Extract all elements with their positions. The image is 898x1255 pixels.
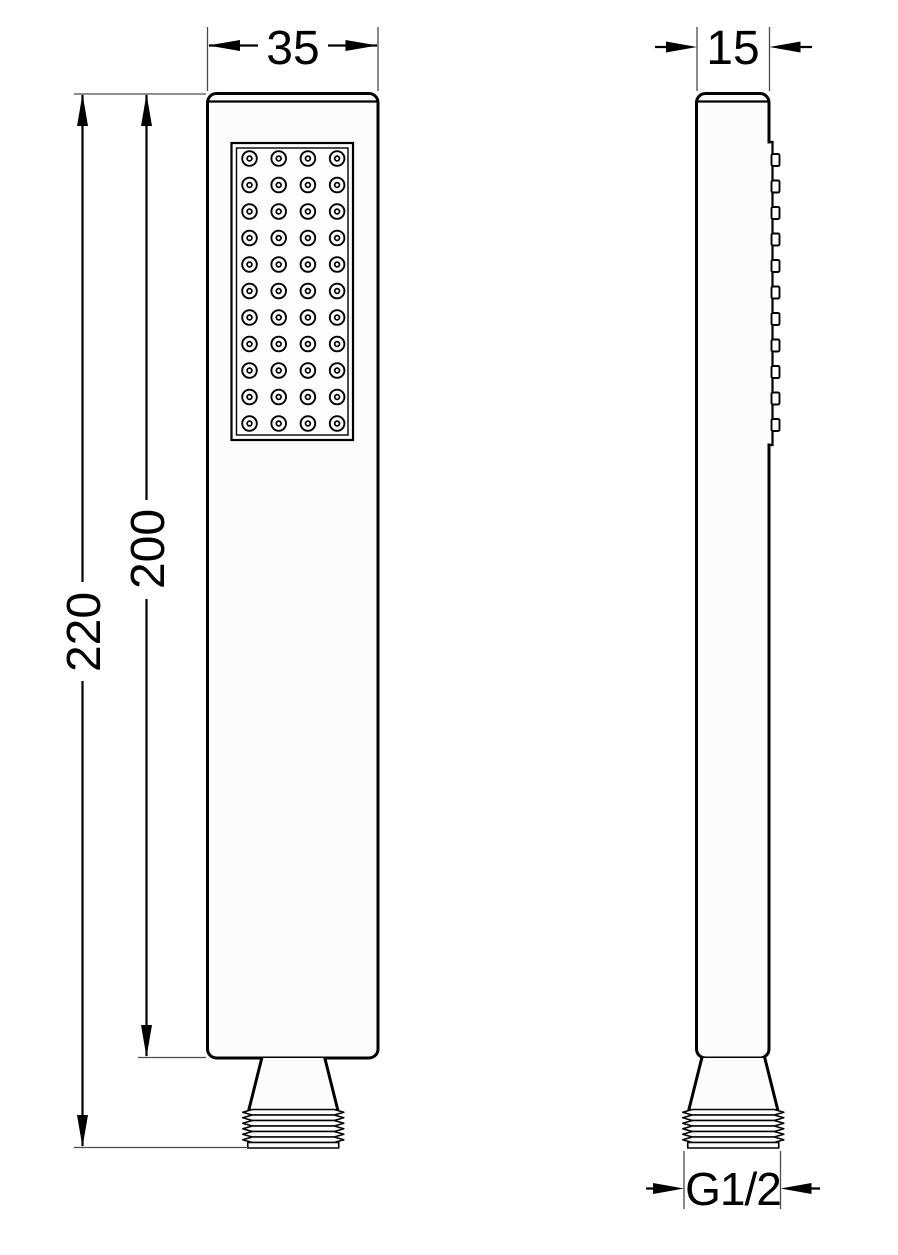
side-nozzle-bump (772, 287, 780, 299)
nozzle-outer-ring (242, 204, 257, 219)
thread-ridge (683, 1115, 784, 1121)
nozzle-outer-ring (301, 416, 316, 431)
nozzle-outer-ring (301, 257, 316, 272)
arrow-left-icon (770, 42, 801, 53)
thread-ridge (243, 1115, 344, 1121)
nozzle-outer-ring (271, 151, 286, 166)
arrow-left-icon (208, 40, 240, 51)
technical-drawing-canvas: 35 220 200 15 G1/2 (0, 0, 898, 1255)
nozzle-outer-ring (330, 390, 345, 405)
nozzle-outer-ring (330, 257, 345, 272)
side-nozzle-bump (772, 340, 780, 352)
front-thread (243, 1110, 344, 1149)
nozzle-outer-ring (330, 204, 345, 219)
nozzle-outer-ring (271, 390, 286, 405)
thread-bottom-band (688, 1143, 779, 1149)
thread-ridge (683, 1110, 784, 1116)
nozzle-outer-ring (301, 390, 316, 405)
side-nozzle-bump (772, 207, 780, 219)
thread-ridge (243, 1110, 344, 1116)
thread-ridge (243, 1121, 344, 1127)
nozzle-outer-ring (330, 151, 345, 166)
nozzle-outer-ring (301, 363, 316, 378)
dimension-thread-size: G1/2 (646, 1151, 820, 1215)
dimension-side-width: 15 (655, 22, 812, 91)
arrow-right-icon (653, 1183, 684, 1194)
thread-size-value: G1/2 (685, 1163, 781, 1215)
thread-ridge (243, 1137, 344, 1143)
arrow-up-icon (141, 94, 152, 126)
nozzle-outer-ring (330, 337, 345, 352)
side-nozzle-bump (772, 154, 780, 166)
nozzle-outer-ring (242, 310, 257, 325)
side-nozzle-bump (772, 366, 780, 378)
thread-ridge (683, 1121, 784, 1127)
nozzle-outer-ring (242, 231, 257, 246)
side-nozzle-bump (772, 260, 780, 272)
nozzle-outer-ring (330, 310, 345, 325)
side-nozzle-bump (772, 393, 780, 405)
thread-ridge (683, 1132, 784, 1138)
side-thread (683, 1110, 784, 1149)
side-nozzle-bump (772, 313, 780, 325)
dimension-body-height: 200 (122, 94, 206, 1058)
nozzle-outer-ring (301, 204, 316, 219)
arrow-up-icon (77, 94, 88, 126)
thread-ridge (683, 1126, 784, 1132)
nozzle-outer-ring (242, 416, 257, 431)
side-nozzle-bump (772, 181, 780, 193)
nozzle-outer-ring (271, 204, 286, 219)
nozzle-outer-ring (242, 390, 257, 405)
arrow-down-icon (77, 1115, 88, 1147)
arrow-down-icon (141, 1025, 152, 1057)
nozzle-outer-ring (330, 284, 345, 299)
nozzle-outer-ring (330, 178, 345, 193)
arrow-right-icon (346, 40, 378, 51)
nozzle-outer-ring (271, 363, 286, 378)
nozzle-outer-ring (242, 284, 257, 299)
arrow-left-icon (781, 1183, 812, 1194)
drawing-svg: 35 220 200 15 G1/2 (0, 0, 898, 1255)
thread-ridge (683, 1137, 784, 1143)
nozzle-outer-ring (301, 151, 316, 166)
nozzle-outer-ring (271, 284, 286, 299)
overall-height-value: 220 (58, 592, 111, 672)
side-nozzle-bump (772, 419, 780, 431)
front-cone-fill (249, 1058, 338, 1110)
nozzle-outer-ring (271, 416, 286, 431)
side-body (697, 94, 770, 1059)
front-width-value: 35 (266, 22, 319, 75)
thread-ridge (243, 1132, 344, 1138)
nozzle-outer-ring (301, 178, 316, 193)
nozzle-outer-ring (271, 337, 286, 352)
nozzle-outer-ring (242, 151, 257, 166)
side-nozzle-bump (772, 234, 780, 246)
dimension-front-width: 35 (208, 22, 379, 91)
thread-ridge (243, 1126, 344, 1132)
nozzle-outer-ring (301, 337, 316, 352)
nozzle-outer-ring (301, 231, 316, 246)
nozzle-outer-ring (271, 310, 286, 325)
front-view (208, 94, 379, 1149)
nozzle-outer-ring (271, 231, 286, 246)
nozzle-outer-ring (301, 284, 316, 299)
nozzle-outer-ring (242, 178, 257, 193)
side-cone-fill (689, 1058, 778, 1110)
nozzle-outer-ring (242, 337, 257, 352)
nozzle-outer-ring (242, 363, 257, 378)
arrow-right-icon (666, 42, 697, 53)
nozzle-outer-ring (271, 178, 286, 193)
side-view (683, 94, 784, 1149)
thread-bottom-band (248, 1143, 339, 1149)
nozzle-outer-ring (330, 416, 345, 431)
nozzle-outer-ring (242, 257, 257, 272)
nozzle-outer-ring (271, 257, 286, 272)
body-height-value: 200 (122, 509, 175, 589)
nozzle-outer-ring (301, 310, 316, 325)
side-width-value: 15 (706, 22, 759, 75)
nozzle-outer-ring (330, 231, 345, 246)
nozzle-outer-ring (330, 363, 345, 378)
